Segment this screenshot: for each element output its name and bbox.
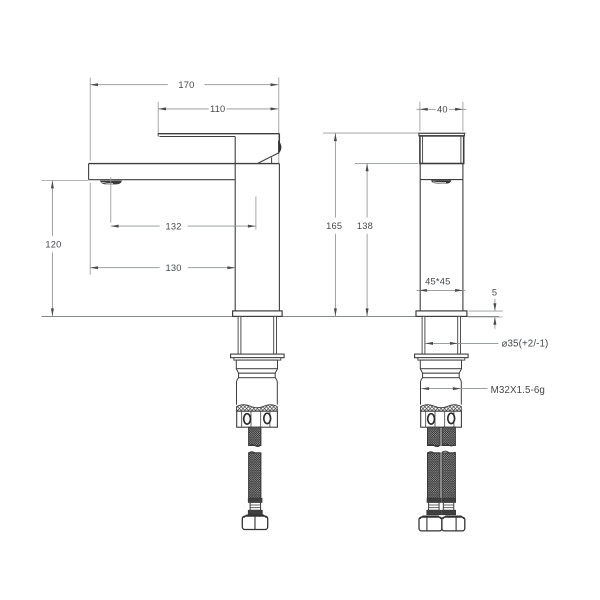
- svg-text:⌀35(+2/-1): ⌀35(+2/-1): [502, 338, 549, 349]
- svg-text:40: 40: [437, 105, 448, 115]
- svg-text:130: 130: [166, 263, 182, 273]
- svg-text:110: 110: [210, 104, 225, 114]
- svg-text:170: 170: [178, 80, 194, 90]
- svg-text:165: 165: [326, 221, 342, 231]
- svg-text:45*45: 45*45: [425, 276, 450, 286]
- svg-text:5: 5: [492, 288, 497, 298]
- svg-text:138: 138: [357, 221, 373, 231]
- svg-text:132: 132: [166, 221, 182, 231]
- svg-text:M32X1.5-6g: M32X1.5-6g: [491, 385, 545, 396]
- svg-text:120: 120: [45, 239, 61, 249]
